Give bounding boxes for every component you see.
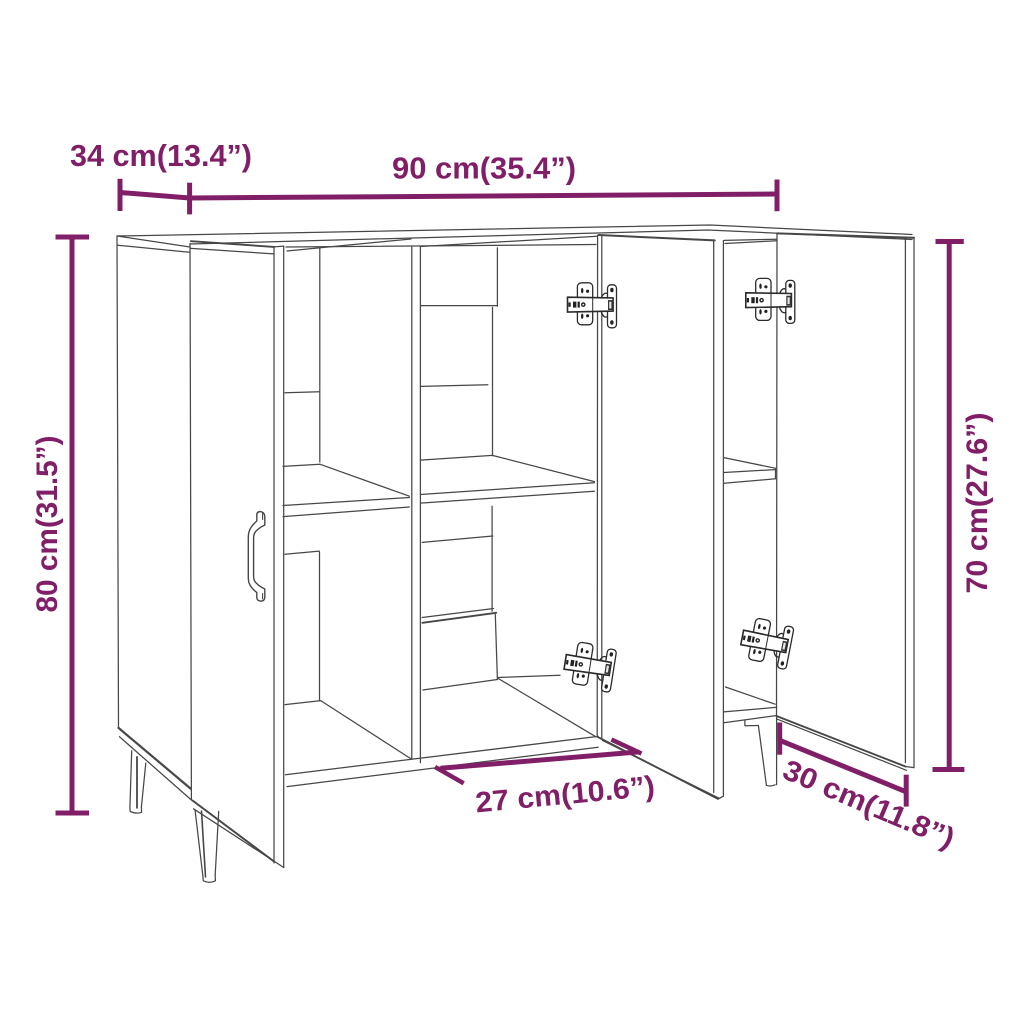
svg-text:34 cm(13.4”): 34 cm(13.4”) — [70, 138, 252, 173]
svg-text:70 cm(27.6”): 70 cm(27.6”) — [961, 413, 994, 594]
svg-text:80 cm(31.5”): 80 cm(31.5”) — [31, 436, 64, 613]
svg-text:90 cm(35.4”): 90 cm(35.4”) — [392, 151, 576, 186]
svg-text:30 cm(11.8”): 30 cm(11.8”) — [778, 754, 959, 855]
svg-text:27 cm(10.6”): 27 cm(10.6”) — [474, 771, 656, 820]
